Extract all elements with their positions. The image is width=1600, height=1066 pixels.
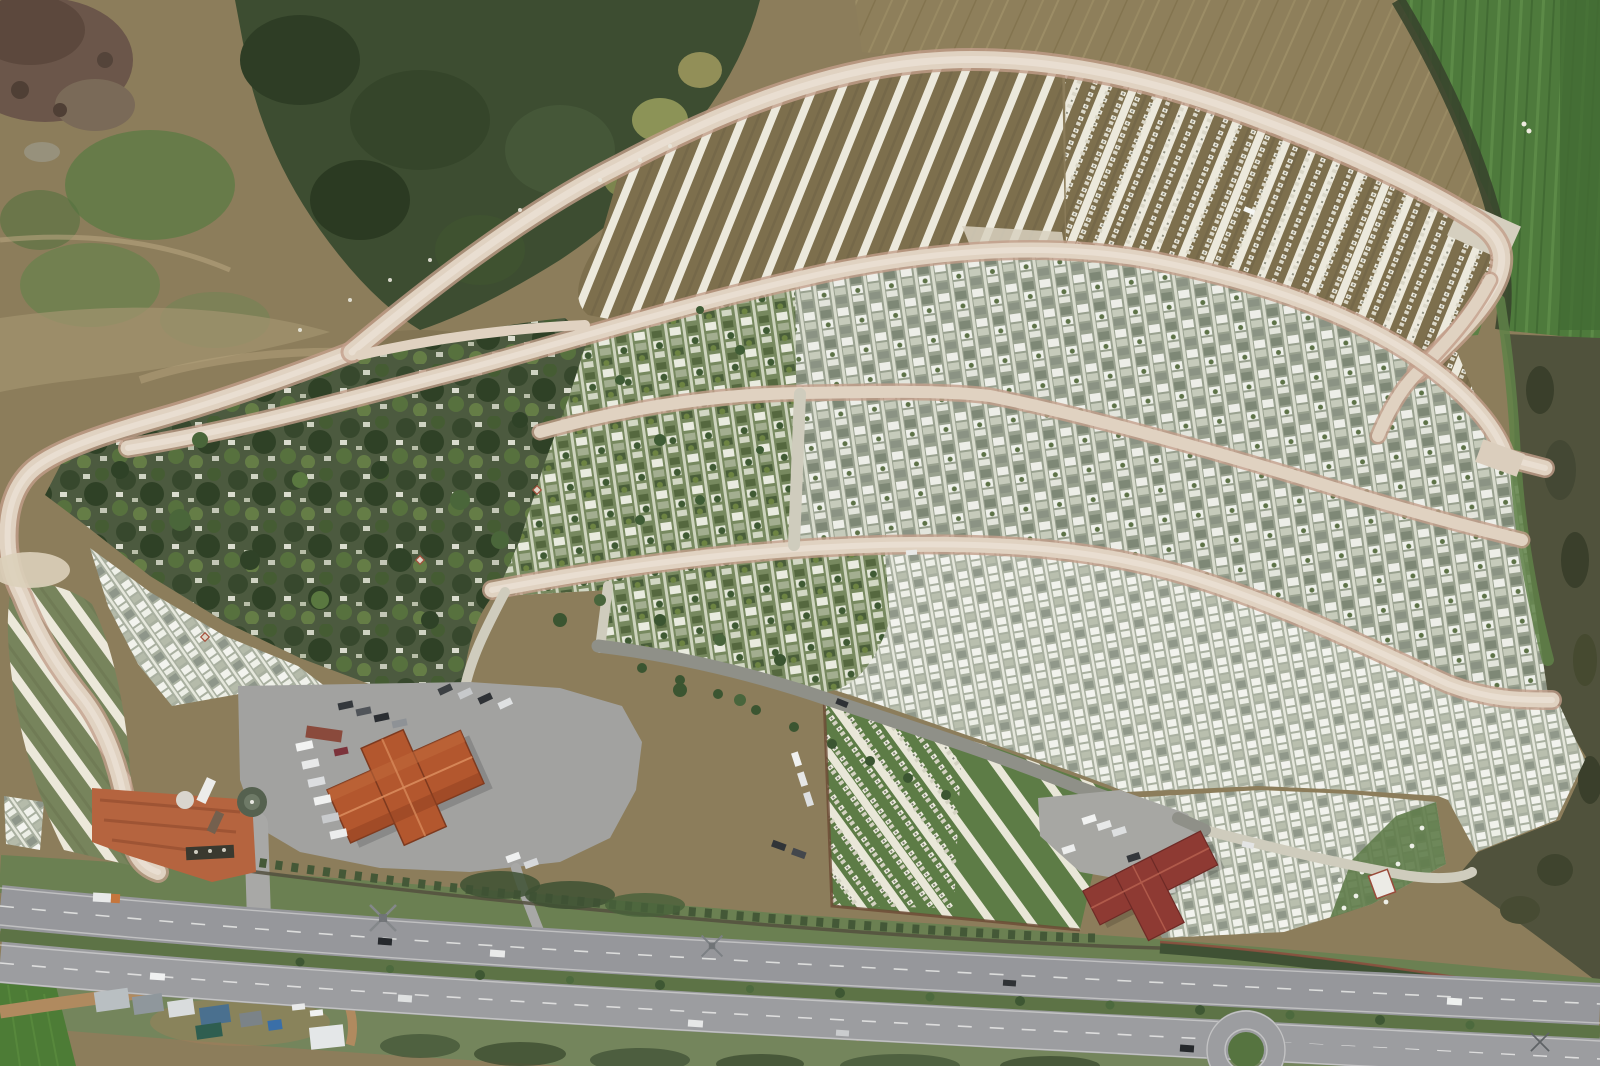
white-tent [309, 1024, 345, 1049]
aerial-photo-cemetery [0, 0, 1600, 1066]
rubble-pile [176, 791, 194, 809]
small-grave-cluster [4, 796, 44, 850]
scene-canvas [0, 0, 1600, 1066]
